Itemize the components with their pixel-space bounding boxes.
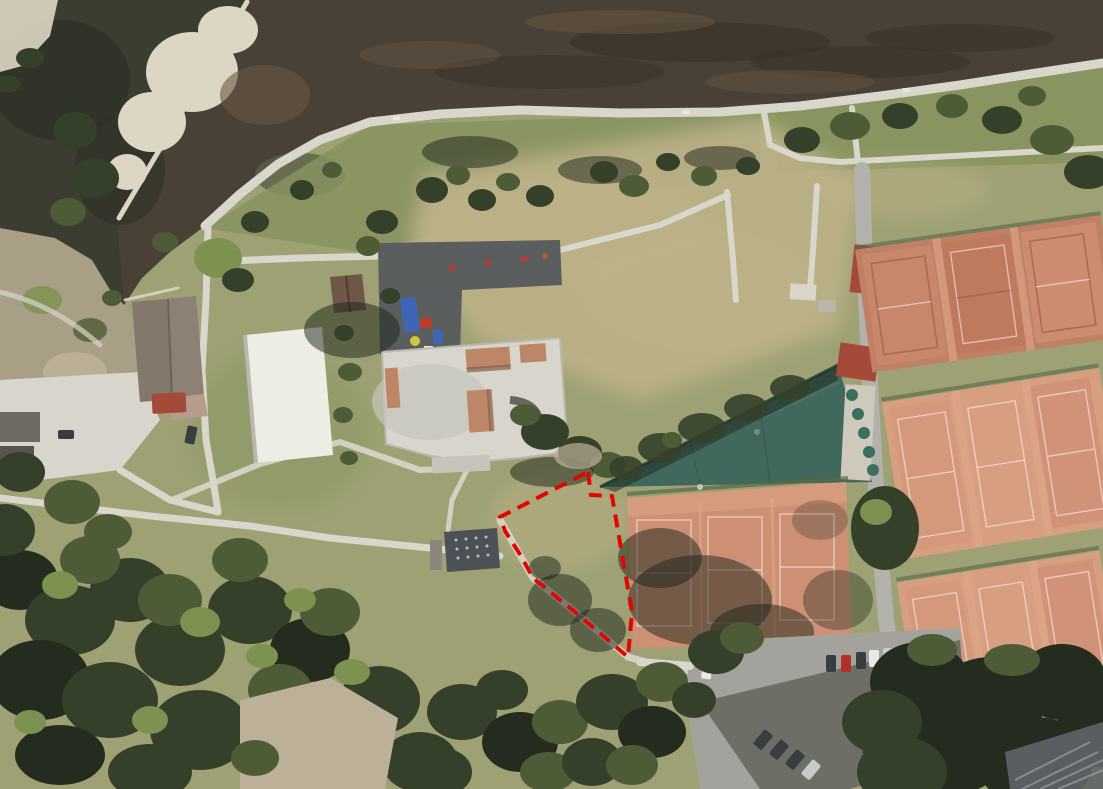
tree xyxy=(416,177,448,203)
play-structure xyxy=(410,336,420,346)
tree xyxy=(1018,86,1046,106)
tree xyxy=(736,157,760,175)
tree xyxy=(71,158,119,198)
tree xyxy=(860,499,892,525)
satellite-map[interactable] xyxy=(0,0,1103,789)
tree xyxy=(609,456,643,480)
tree xyxy=(526,185,554,207)
tree xyxy=(222,268,254,292)
tree xyxy=(656,153,680,171)
tree xyxy=(246,644,278,668)
tree xyxy=(14,710,46,734)
tree xyxy=(590,161,618,183)
tree xyxy=(468,189,496,211)
tree xyxy=(231,740,279,776)
tree xyxy=(333,407,353,423)
tree xyxy=(476,670,528,710)
bench xyxy=(683,110,690,114)
tree xyxy=(102,290,122,306)
tree xyxy=(340,451,358,465)
tree xyxy=(784,127,820,153)
skate-ramp xyxy=(385,368,401,409)
tree xyxy=(44,480,100,524)
tree xyxy=(53,112,97,148)
tree xyxy=(724,394,768,422)
skate-ramp xyxy=(519,343,546,363)
tree xyxy=(322,162,342,178)
shed xyxy=(818,300,836,312)
tree xyxy=(720,622,764,654)
tree xyxy=(984,644,1040,676)
tree xyxy=(678,413,726,443)
parked-car xyxy=(58,430,74,439)
tree xyxy=(851,486,919,570)
parked-car xyxy=(826,655,836,672)
play-structure xyxy=(420,318,432,328)
tree xyxy=(662,432,682,448)
tree xyxy=(338,363,362,381)
tree xyxy=(241,211,269,233)
tree xyxy=(882,103,918,129)
tree xyxy=(770,375,810,401)
tree xyxy=(180,607,220,637)
bench xyxy=(393,116,400,120)
bench xyxy=(903,88,910,92)
tree xyxy=(691,166,717,186)
shed xyxy=(790,283,817,300)
tree xyxy=(334,659,370,685)
tree xyxy=(907,634,957,666)
tree xyxy=(672,682,716,718)
tree xyxy=(84,514,132,550)
dark-pad xyxy=(444,528,500,572)
parked-car xyxy=(856,652,866,669)
shelter xyxy=(430,540,442,570)
tree xyxy=(50,198,86,226)
tree xyxy=(982,106,1022,134)
tree xyxy=(619,175,649,197)
tree xyxy=(284,588,316,612)
roof-vent xyxy=(754,429,760,435)
tree xyxy=(830,112,870,140)
shed xyxy=(0,412,40,442)
play-structure xyxy=(433,330,443,344)
tree xyxy=(152,232,178,252)
tree xyxy=(366,210,398,234)
tree xyxy=(936,94,968,118)
tree xyxy=(510,404,540,426)
tree xyxy=(446,165,470,185)
tree xyxy=(1030,125,1074,155)
tree xyxy=(290,180,314,200)
tree xyxy=(15,725,105,785)
tree xyxy=(132,706,168,734)
tree xyxy=(356,236,380,256)
tree xyxy=(606,745,658,785)
tree xyxy=(42,571,78,599)
red-roof-shed xyxy=(151,392,186,414)
parked-car xyxy=(841,655,851,672)
worn-grass xyxy=(554,443,602,469)
tree xyxy=(496,173,520,191)
map-canvas[interactable] xyxy=(0,0,1103,789)
tree xyxy=(212,538,268,582)
